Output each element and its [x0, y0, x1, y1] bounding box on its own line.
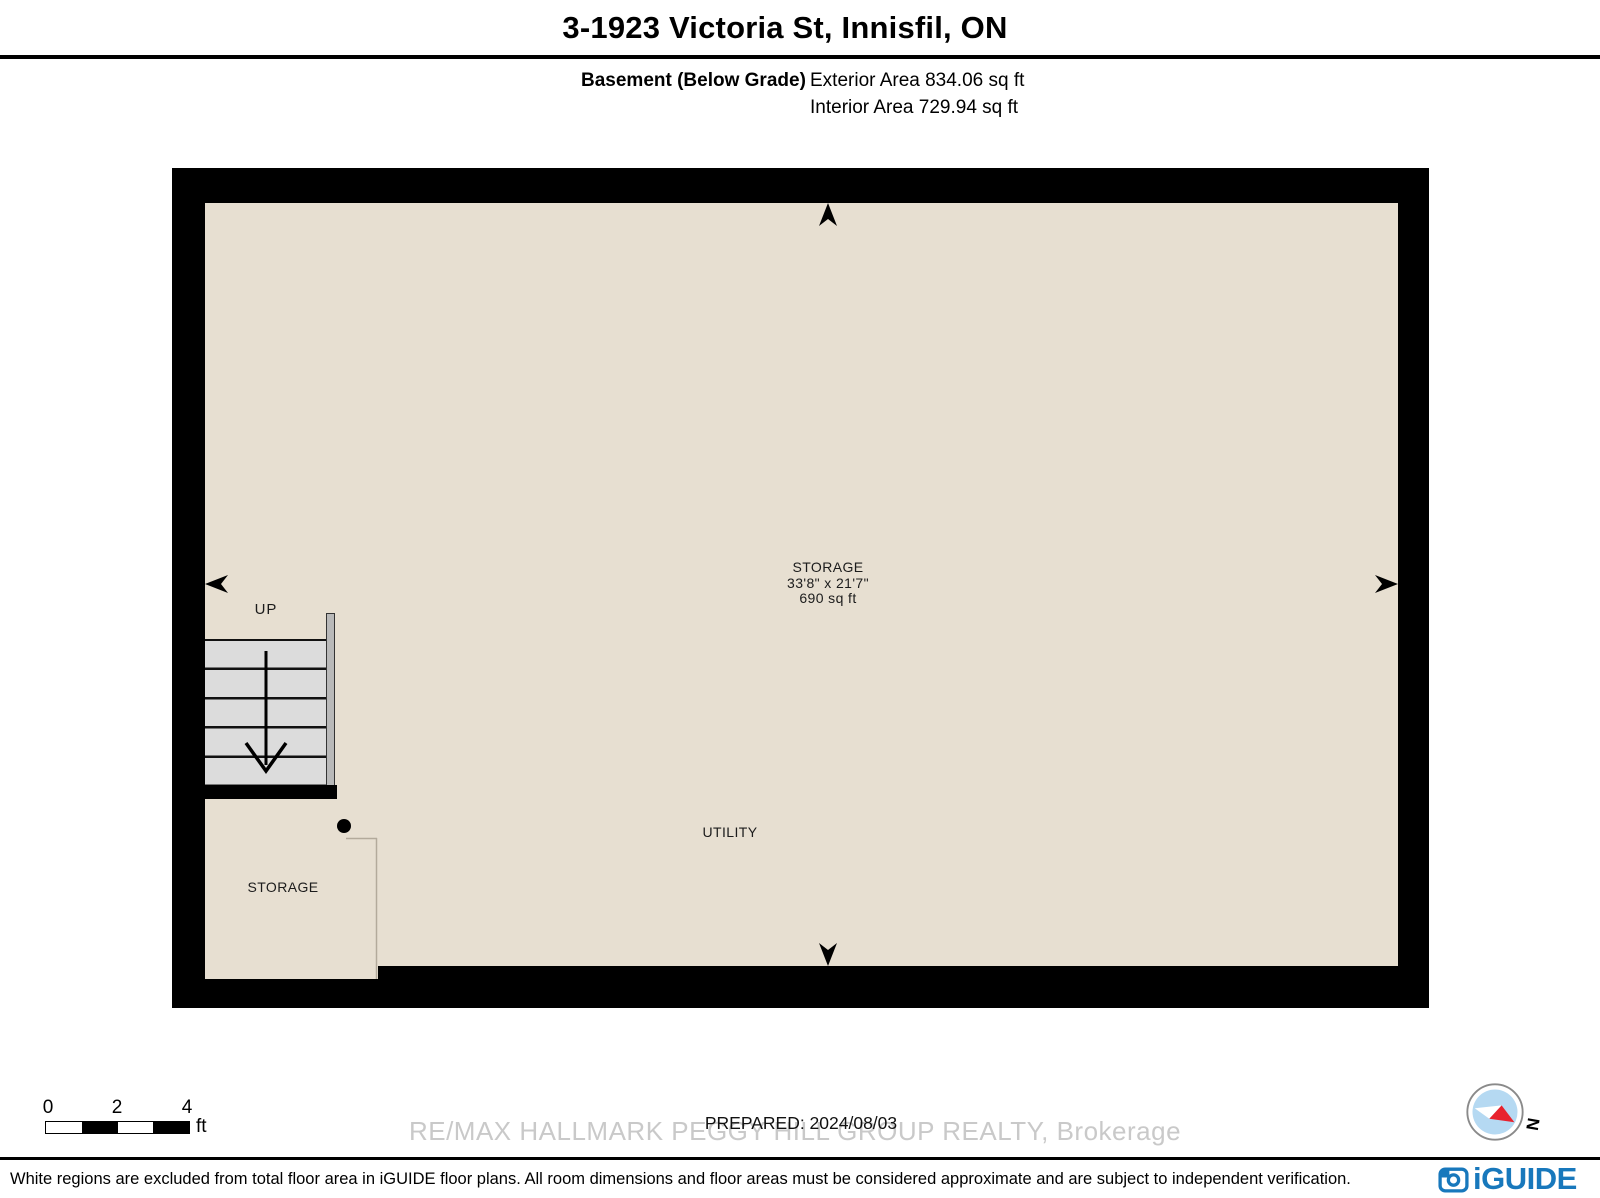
iguide-logo: iGUIDE: [1437, 1161, 1577, 1197]
plan-annotations: [172, 168, 1429, 1008]
disclaimer-text: White regions are excluded from total fl…: [10, 1170, 1351, 1189]
exterior-area-text: Exterior Area 834.06 sq ft: [810, 70, 1024, 92]
prepared-date: PREPARED: 2024/08/03: [705, 1113, 897, 1134]
floor-label: Basement (Below Grade): [581, 70, 806, 92]
extent-arrow-down-icon: [819, 943, 837, 966]
footer-divider: [0, 1157, 1600, 1160]
iguide-logo-text: iGUIDE: [1473, 1161, 1577, 1197]
extent-arrow-right-icon: [1375, 575, 1398, 593]
scale-segment: [82, 1122, 118, 1133]
scale-tick-2: 2: [112, 1097, 123, 1119]
compass-icon: [1465, 1082, 1525, 1142]
scale-segment: [118, 1122, 154, 1133]
stairs-down-arrow-icon: [246, 651, 286, 771]
scale-unit-label: ft: [196, 1116, 207, 1138]
interior-area-text: Interior Area 729.94 sq ft: [810, 97, 1018, 119]
scale-bar: [45, 1121, 190, 1134]
scale-tick-4: 4: [182, 1097, 193, 1119]
floorplan-canvas: UP STORAGE 33'8" x 21'7" 690 sq ft UTILI…: [172, 168, 1429, 1008]
extent-arrow-up-icon: [819, 203, 837, 226]
page-title: 3-1923 Victoria St, Innisfil, ON: [562, 10, 1007, 46]
scale-tick-0: 0: [43, 1097, 54, 1119]
room-divider-lines: [346, 838, 377, 979]
extent-arrow-left-icon: [205, 575, 228, 593]
scale-segment: [153, 1122, 189, 1133]
iguide-logo-icon: [1437, 1163, 1470, 1196]
scale-segment: [46, 1122, 82, 1133]
header-divider: [0, 55, 1600, 59]
floorplan-page: 3-1923 Victoria St, Innisfil, ON Basemen…: [0, 0, 1600, 1198]
